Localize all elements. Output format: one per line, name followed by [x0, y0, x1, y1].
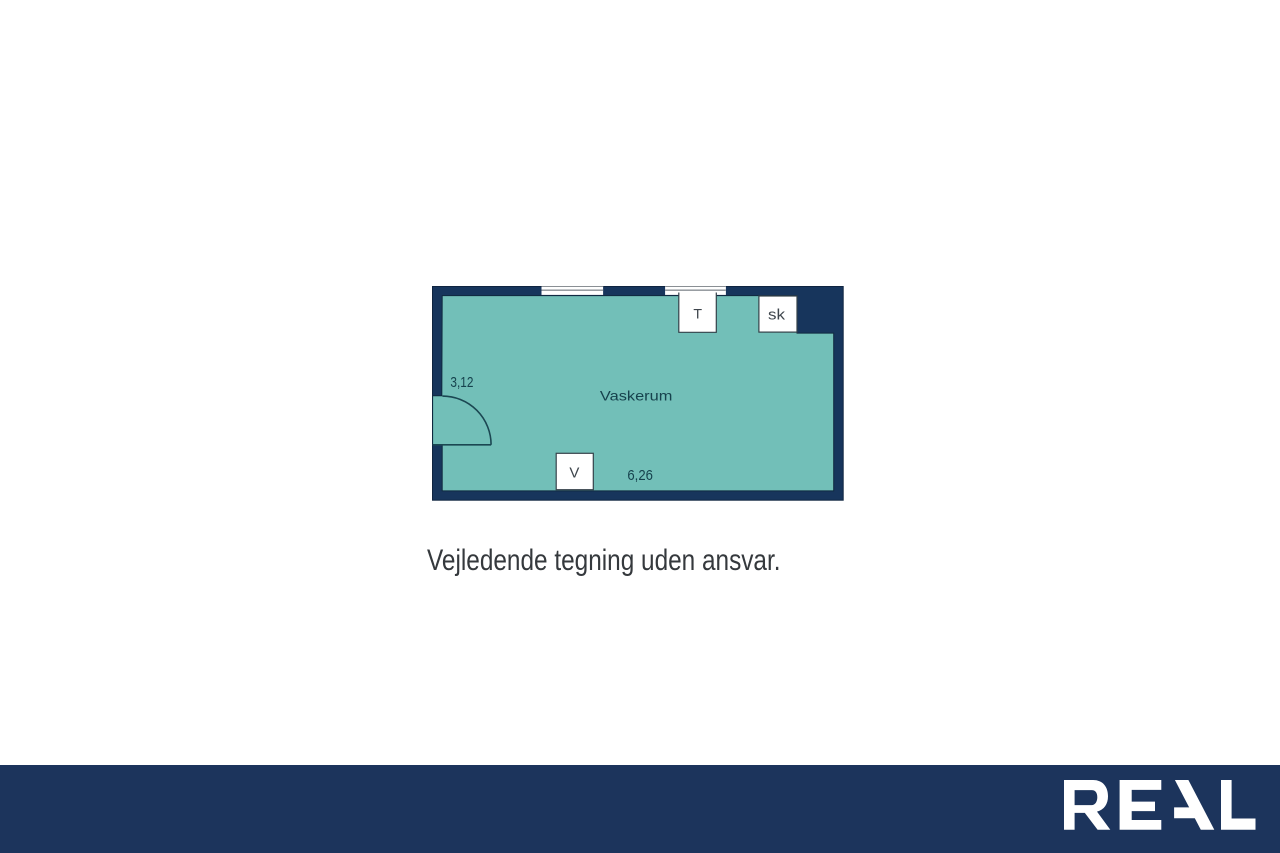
svg-text:Vaskerum: Vaskerum: [600, 387, 673, 403]
svg-text:3,12: 3,12: [450, 375, 473, 391]
svg-text:T: T: [693, 307, 702, 323]
svg-text:6,26: 6,26: [627, 468, 653, 484]
svg-text:V: V: [569, 464, 579, 481]
svg-text:sk: sk: [768, 307, 786, 324]
